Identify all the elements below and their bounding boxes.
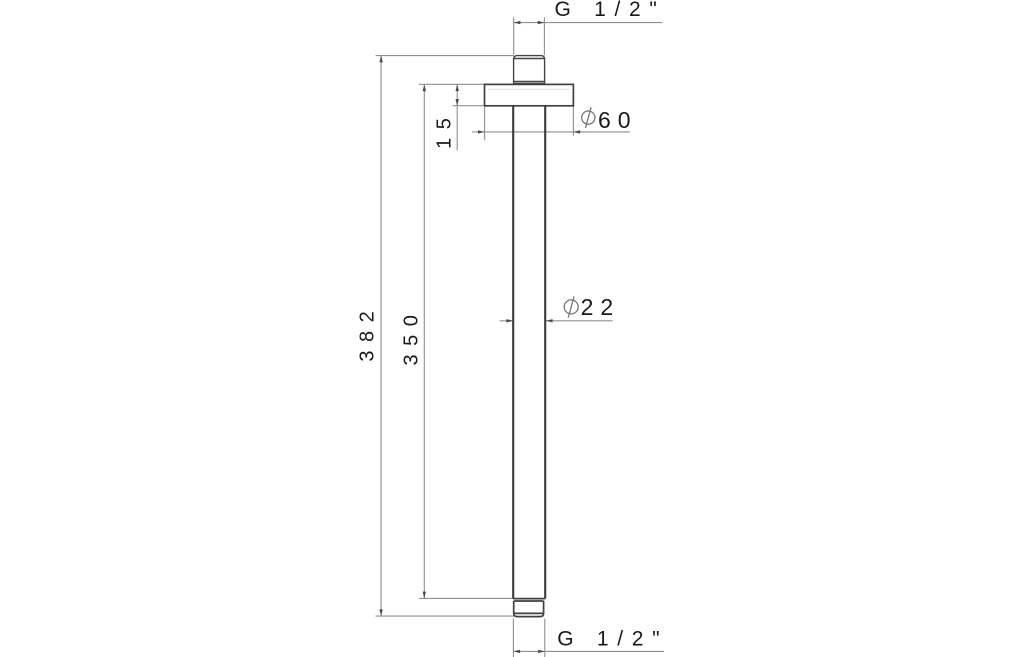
svg-text:382: 382 xyxy=(357,303,379,362)
svg-text:G 1/2": G 1/2" xyxy=(557,627,668,650)
svg-text:60: 60 xyxy=(598,107,638,133)
svg-text:G 1/2": G 1/2" xyxy=(555,0,666,21)
svg-text:350: 350 xyxy=(401,307,423,366)
svg-text:22: 22 xyxy=(581,294,621,320)
svg-text:15: 15 xyxy=(434,110,456,149)
